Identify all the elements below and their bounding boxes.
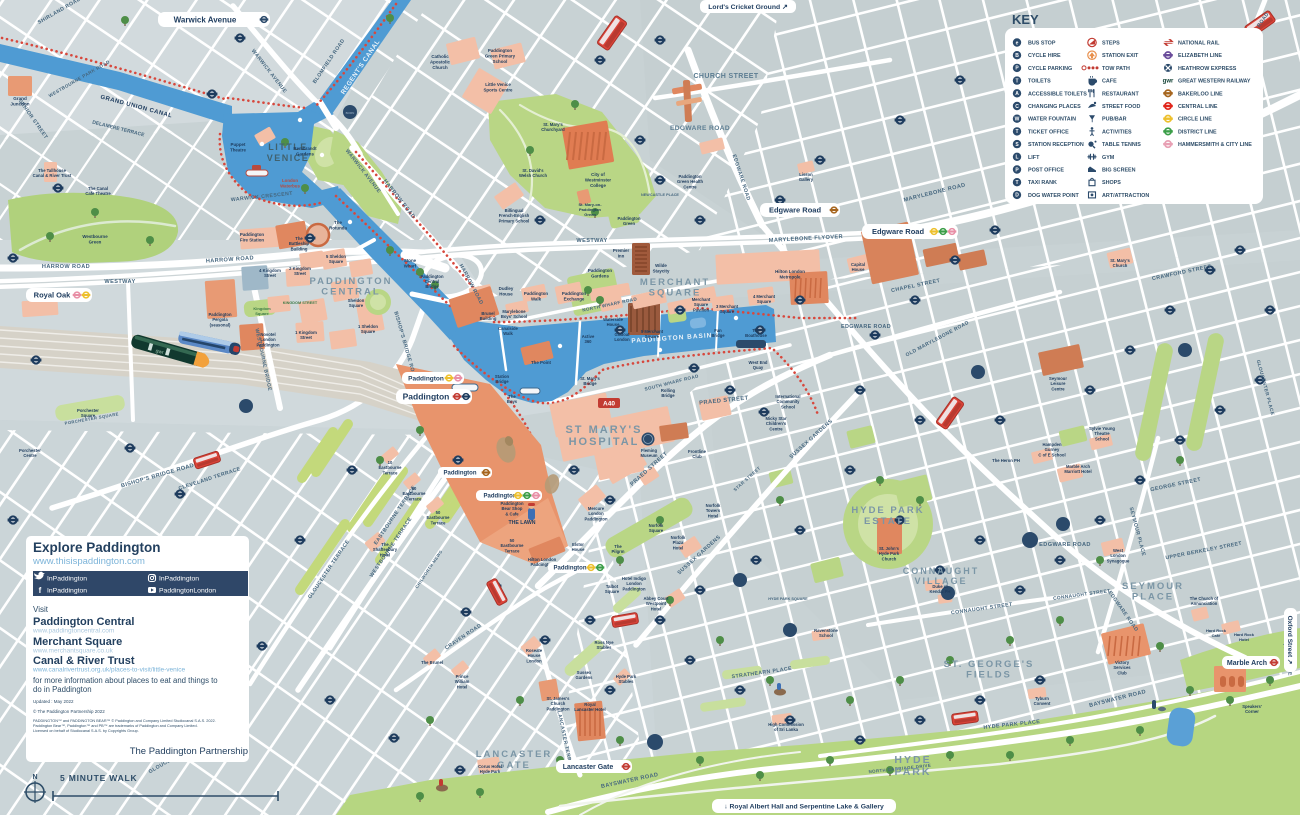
svg-text:KEY: KEY	[1012, 12, 1039, 27]
svg-text:Street: Street	[264, 273, 276, 278]
svg-text:Museum: Museum	[641, 453, 658, 458]
svg-text:TAXI RANK: TAXI RANK	[1028, 180, 1057, 186]
svg-text:Paddington: Paddington	[484, 494, 517, 500]
svg-text:London: London	[614, 337, 630, 342]
svg-text:ACCESSIBLE TOILETS: ACCESSIBLE TOILETS	[1028, 91, 1087, 97]
svg-text:CENTRAL: CENTRAL	[321, 287, 380, 298]
svg-text:STATION RECEPTION: STATION RECEPTION	[1028, 142, 1084, 148]
svg-text:(seasonal): (seasonal)	[210, 322, 231, 327]
svg-text:Square: Square	[720, 309, 735, 314]
svg-text:Licensed on behalf of Studioca: Licensed on behalf of Studiocanal S.A.S.…	[33, 729, 139, 733]
svg-text:Updated : May 2022: Updated : May 2022	[33, 699, 74, 704]
svg-text:Square: Square	[255, 311, 269, 316]
svg-text:Paddington: Paddington	[524, 291, 548, 296]
svg-text:Rotunda: Rotunda	[329, 225, 347, 230]
svg-text:ST MARY'S: ST MARY'S	[565, 424, 642, 436]
svg-text:360: 360	[585, 339, 593, 344]
svg-text:House: House	[852, 267, 865, 272]
svg-text:Synagogue: Synagogue	[1107, 558, 1130, 563]
svg-text:Café: Café	[1212, 633, 1221, 638]
svg-text:Paddington: Paddington	[588, 268, 612, 273]
svg-text:EDGWARE ROAD: EDGWARE ROAD	[841, 324, 891, 330]
svg-text:Fire Station: Fire Station	[240, 237, 264, 242]
svg-text:Marble Arch: Marble Arch	[1227, 660, 1267, 667]
svg-text:CONNAUGHT: CONNAUGHT	[903, 566, 980, 576]
svg-text:Little Venice: Little Venice	[485, 82, 511, 87]
svg-text:Square: Square	[361, 329, 376, 334]
svg-text:HAMMERSMITH & CITY LINE: HAMMERSMITH & CITY LINE	[1178, 142, 1252, 148]
svg-text:House: House	[607, 322, 620, 327]
svg-text:www.paddingtoncentral.com: www.paddingtoncentral.com	[32, 628, 114, 635]
svg-text:Apostolic: Apostolic	[430, 59, 451, 64]
svg-text:T: T	[1015, 78, 1018, 84]
svg-text:Corner: Corner	[1245, 709, 1259, 714]
svg-text:Grand: Grand	[13, 96, 27, 101]
svg-text:PADDINGTON™ and PADDINGTON BEA: PADDINGTON™ and PADDINGTON BEAR™ © Paddi…	[33, 719, 216, 723]
svg-text:Walk: Walk	[531, 296, 542, 301]
svg-text:Paddington Bear™, Paddington™: Paddington Bear™, Paddington™ and PB™ ar…	[33, 724, 198, 728]
svg-text:CAFE: CAFE	[1102, 79, 1117, 85]
svg-text:TABLE TENNIS: TABLE TENNIS	[1102, 142, 1141, 148]
svg-text:School: School	[493, 59, 508, 64]
svg-text:Lancaster Hotel: Lancaster Hotel	[574, 707, 605, 712]
svg-text:Terrace: Terrace	[383, 470, 398, 475]
svg-text:Stables: Stables	[619, 679, 635, 684]
svg-text:Puppet: Puppet	[231, 142, 246, 147]
svg-text:www.merchantsquare.co.uk: www.merchantsquare.co.uk	[32, 648, 114, 655]
svg-text:Bridge: Bridge	[425, 284, 439, 289]
svg-text:Hotel: Hotel	[1239, 637, 1249, 642]
svg-text:Terrace: Terrace	[407, 496, 422, 501]
svg-text:Welsh Church: Welsh Church	[519, 173, 548, 178]
svg-text:BUS STOP: BUS STOP	[1028, 41, 1056, 47]
svg-text:www.thisispaddington.com: www.thisispaddington.com	[32, 556, 145, 567]
svg-text:C of E School: C of E School	[1038, 452, 1065, 457]
svg-text:Paddington: Paddington	[584, 516, 607, 521]
svg-text:Lancaster Gate: Lancaster Gate	[563, 764, 614, 771]
svg-text:EDGWARE ROAD: EDGWARE ROAD	[670, 125, 730, 132]
svg-text:Paddington: Paddington	[622, 586, 645, 591]
svg-text:Visit: Visit	[33, 605, 49, 614]
svg-text:Boathouse: Boathouse	[745, 333, 767, 338]
svg-text:WATER FOUNTAIN: WATER FOUNTAIN	[1028, 117, 1076, 123]
svg-text:Merchant Square: Merchant Square	[33, 636, 122, 648]
svg-text:Street: Street	[300, 335, 312, 340]
svg-text:HYDE PARK SQUARE: HYDE PARK SQUARE	[768, 597, 808, 601]
svg-text:TOILETS: TOILETS	[1028, 79, 1051, 85]
svg-text:Club: Club	[692, 454, 702, 459]
svg-text:School: School	[781, 404, 795, 409]
svg-text:Waterbus: Waterbus	[280, 183, 300, 188]
svg-text:SHOPS: SHOPS	[1102, 180, 1121, 186]
svg-text:Terrace: Terrace	[431, 520, 446, 525]
svg-text:House: House	[572, 547, 585, 552]
svg-text:ART/ATTRACTION: ART/ATTRACTION	[1102, 193, 1149, 199]
svg-text:NEWCASTLE PLACE: NEWCASTLE PLACE	[641, 193, 679, 197]
svg-text:Gardens: Gardens	[591, 273, 609, 278]
svg-text:Walk: Walk	[503, 331, 513, 336]
svg-text:Paddington: Paddington	[546, 706, 569, 711]
svg-text:Kendal PH: Kendal PH	[930, 589, 951, 594]
svg-text:THE LAWN: THE LAWN	[508, 520, 535, 526]
svg-text:© The Paddington Partnership 2: © The Paddington Partnership 2022	[33, 708, 105, 714]
svg-text:& Cafe: & Cafe	[505, 511, 519, 516]
svg-text:do in Paddington: do in Paddington	[33, 685, 92, 694]
svg-text:Street: Street	[294, 271, 306, 276]
svg-text:Canal & River Trust: Canal & River Trust	[33, 173, 72, 178]
svg-text:Paddington: Paddington	[240, 232, 264, 237]
svg-text:ACTIVITIES: ACTIVITIES	[1102, 129, 1132, 135]
svg-text:W: W	[1015, 117, 1020, 123]
svg-text:D: D	[1015, 193, 1019, 199]
svg-text:Explore Paddington: Explore Paddington	[33, 540, 161, 555]
svg-text:T: T	[1015, 129, 1018, 135]
svg-text:Church: Church	[432, 65, 448, 70]
svg-text:Building: Building	[291, 246, 308, 251]
svg-text:Centre: Centre	[1051, 386, 1065, 391]
svg-text:5 MINUTE WALK: 5 MINUTE WALK	[60, 773, 138, 783]
svg-text:Green: Green	[623, 221, 636, 226]
svg-text:Marriott Hotel: Marriott Hotel	[1064, 469, 1091, 474]
svg-text:The Point: The Point	[531, 360, 552, 365]
svg-text:Convent: Convent	[1034, 701, 1051, 706]
svg-text:CENTRAL LINE: CENTRAL LINE	[1178, 104, 1218, 110]
svg-text:Bridge: Bridge	[583, 381, 597, 386]
svg-text:Exchange: Exchange	[564, 296, 585, 301]
svg-text:The Heron PH: The Heron PH	[992, 458, 1020, 463]
svg-text:Square: Square	[349, 303, 364, 308]
svg-text:Green Primary: Green Primary	[485, 53, 516, 58]
svg-text:f: f	[39, 586, 42, 595]
svg-text:ST. GEORGE'S: ST. GEORGE'S	[944, 659, 1035, 670]
svg-text:Paddington Central: Paddington Central	[33, 616, 134, 628]
svg-text:Wharf: Wharf	[404, 263, 417, 268]
svg-text:Square: Square	[81, 413, 96, 418]
svg-text:L: L	[1015, 155, 1018, 161]
svg-text:gwr: gwr	[1163, 79, 1174, 85]
svg-text:MERCHANT: MERCHANT	[640, 277, 710, 288]
svg-text:CHURCH STREET: CHURCH STREET	[693, 73, 758, 80]
svg-text:WESTWAY: WESTWAY	[576, 238, 607, 244]
svg-text:STATION EXIT: STATION EXIT	[1102, 53, 1139, 59]
svg-text:London: London	[282, 178, 298, 183]
svg-text:A: A	[1015, 91, 1019, 97]
svg-text:The: The	[334, 220, 342, 225]
svg-text:Church: Church	[1113, 263, 1128, 268]
svg-text:GREAT WESTERN RAILWAY: GREAT WESTERN RAILWAY	[1178, 79, 1251, 85]
svg-text:Hilton London: Hilton London	[775, 269, 805, 274]
svg-text:Hotel: Hotel	[673, 545, 683, 550]
svg-text:London: London	[526, 658, 542, 663]
svg-text:CIRCLE LINE: CIRCLE LINE	[1178, 117, 1212, 123]
svg-text:FIELDS: FIELDS	[966, 670, 1012, 681]
svg-text:Royal Oak: Royal Oak	[34, 291, 72, 300]
svg-text:Hotel: Hotel	[708, 513, 718, 518]
svg-text:Pavilion: Pavilion	[693, 307, 709, 312]
svg-text:Centre: Centre	[23, 453, 37, 458]
svg-text:BAKERLOO LINE: BAKERLOO LINE	[1178, 91, 1223, 97]
svg-text:STEPS: STEPS	[1102, 41, 1120, 47]
svg-text:TOW PATH: TOW PATH	[1102, 66, 1130, 72]
svg-text:BIG SCREEN: BIG SCREEN	[1102, 168, 1136, 174]
svg-text:Bridge: Bridge	[661, 393, 675, 398]
svg-text:Annunciation: Annunciation	[1191, 601, 1218, 606]
svg-text:Canal & River Trust: Canal & River Trust	[33, 655, 135, 667]
svg-text:Hotel: Hotel	[457, 684, 467, 689]
svg-text:EDGWARE ROAD: EDGWARE ROAD	[1039, 542, 1091, 548]
svg-text:Gallery: Gallery	[799, 177, 814, 182]
svg-text:B: B	[1015, 53, 1019, 59]
svg-text:Paddington: Paddington	[408, 375, 444, 382]
svg-text:Westbourne: Westbourne	[82, 234, 108, 239]
svg-text:T: T	[1015, 180, 1018, 186]
svg-text:Quay: Quay	[753, 365, 764, 370]
svg-text:Bridge: Bridge	[495, 379, 509, 384]
svg-text:BORN: BORN	[346, 111, 355, 115]
svg-text:Junction: Junction	[10, 102, 29, 107]
svg-text:Oxford Street ↗: Oxford Street ↗	[1286, 616, 1293, 665]
svg-text:HYDE PARK: HYDE PARK	[851, 505, 924, 516]
svg-text:Pilgrm: Pilgrm	[611, 549, 624, 554]
svg-text:NATIONAL RAIL: NATIONAL RAIL	[1178, 41, 1220, 47]
svg-text:STREET FOOD: STREET FOOD	[1102, 104, 1140, 110]
svg-text:GATE: GATE	[497, 760, 531, 771]
svg-text:Church: Church	[882, 556, 897, 561]
svg-text:A40: A40	[603, 401, 615, 408]
svg-text:Centre: Centre	[683, 184, 697, 189]
svg-text:Terrace: Terrace	[505, 548, 520, 553]
svg-text:Edgware Road: Edgware Road	[769, 206, 822, 215]
svg-text:Paddington: Paddington	[488, 48, 512, 53]
svg-text:Inn: Inn	[618, 253, 625, 258]
svg-text:CHANGING PLACES: CHANGING PLACES	[1028, 104, 1081, 110]
svg-text:ESTATE: ESTATE	[864, 516, 912, 527]
svg-text:RESTAURANT: RESTAURANT	[1102, 91, 1139, 97]
svg-text:Paddington: Paddington	[444, 471, 477, 477]
svg-text:Square: Square	[329, 259, 344, 264]
svg-text:PaddingtonLondon: PaddingtonLondon	[159, 588, 216, 595]
svg-text:DISTRICT LINE: DISTRICT LINE	[1178, 129, 1217, 135]
svg-text:Green: Green	[584, 212, 596, 217]
svg-text:Gardens: Gardens	[576, 675, 594, 680]
svg-text:Stone: Stone	[404, 258, 417, 263]
svg-text:PUB/BAR: PUB/BAR	[1102, 117, 1127, 123]
svg-text:HYDE: HYDE	[894, 754, 931, 766]
svg-text:Wilde: Wilde	[655, 263, 667, 268]
svg-text:The Brunel: The Brunel	[421, 660, 443, 665]
svg-text:City of: City of	[591, 172, 605, 177]
svg-text:Boys' School: Boys' School	[501, 314, 527, 319]
svg-text:Boys: Boys	[507, 399, 518, 404]
svg-text:Rembrandt: Rembrandt	[293, 146, 317, 151]
svg-text:Premier: Premier	[613, 248, 630, 253]
svg-text:PARK: PARK	[895, 766, 932, 778]
svg-text:Primary School: Primary School	[499, 218, 530, 223]
svg-text:Cafe Theatre: Cafe Theatre	[85, 191, 111, 196]
svg-text:KINGDOM STREET: KINGDOM STREET	[283, 301, 318, 305]
svg-text:www.canalrivertrust.org.uk/pla: www.canalrivertrust.org.uk/places-to-vis…	[32, 667, 185, 674]
svg-text:School: School	[819, 633, 833, 638]
svg-text:for more information about pla: for more information about places to eat…	[33, 676, 218, 685]
svg-text:POST OFFICE: POST OFFICE	[1028, 168, 1064, 174]
svg-text:DOG WATER POINT: DOG WATER POINT	[1028, 193, 1080, 199]
svg-text:Westminster: Westminster	[585, 177, 612, 182]
svg-text:Warwick Avenue: Warwick Avenue	[174, 15, 237, 24]
svg-text:Sports Centre: Sports Centre	[483, 87, 513, 92]
svg-text:Gardens: Gardens	[296, 151, 314, 156]
svg-text:PADDINGTON: PADDINGTON	[310, 276, 393, 287]
svg-text:Lord's Cricket Ground ↗: Lord's Cricket Ground ↗	[708, 4, 788, 11]
svg-text:Edgware Road: Edgware Road	[872, 227, 925, 236]
svg-text:HOSPITAL: HOSPITAL	[569, 436, 640, 448]
svg-text:CYCLE HIRE: CYCLE HIRE	[1028, 53, 1061, 59]
svg-text:Churchyard: Churchyard	[541, 127, 565, 132]
svg-text:Paddington: Paddington	[554, 566, 587, 572]
svg-text:Square: Square	[645, 334, 660, 339]
svg-text:College: College	[590, 183, 606, 188]
svg-text:PLACE: PLACE	[1132, 592, 1174, 603]
svg-text:e: e	[1016, 40, 1019, 46]
svg-text:Club: Club	[1117, 670, 1127, 675]
svg-text:Square: Square	[757, 299, 772, 304]
svg-text:LIFT: LIFT	[1028, 155, 1040, 161]
svg-text:LANCASTER: LANCASTER	[476, 749, 553, 760]
svg-text:InPaddington: InPaddington	[47, 588, 87, 595]
svg-text:Paddington: Paddington	[562, 291, 586, 296]
svg-text:InPaddington: InPaddington	[159, 576, 199, 583]
svg-text:GYM: GYM	[1102, 155, 1115, 161]
svg-text:Staycity: Staycity	[653, 268, 670, 273]
svg-text:CYCLE PARKING: CYCLE PARKING	[1028, 66, 1072, 72]
svg-text:WESTWAY: WESTWAY	[104, 279, 135, 285]
svg-text:TICKET OFFICE: TICKET OFFICE	[1028, 129, 1069, 135]
svg-text:N: N	[32, 774, 37, 781]
svg-text:ELIZABETH LINE: ELIZABETH LINE	[1178, 53, 1222, 59]
svg-text:Square: Square	[605, 589, 620, 594]
svg-text:SEYMOUR: SEYMOUR	[1122, 581, 1184, 592]
svg-text:House: House	[499, 291, 513, 296]
svg-text:Paddington: Paddington	[256, 342, 279, 347]
svg-text:Bridge: Bridge	[711, 333, 725, 338]
svg-text:C: C	[1015, 104, 1019, 110]
svg-text:The Paddington Partnership: The Paddington Partnership	[130, 746, 248, 757]
svg-text:Green: Green	[89, 239, 102, 244]
svg-text:Catholic: Catholic	[431, 54, 449, 59]
svg-text:HARROW ROAD: HARROW ROAD	[42, 264, 90, 270]
svg-text:InPaddington: InPaddington	[47, 576, 87, 583]
svg-text:Centre: Centre	[769, 426, 783, 431]
svg-text:Hotel: Hotel	[651, 606, 661, 611]
svg-text:Dudley: Dudley	[499, 286, 514, 291]
svg-text:Hotel: Hotel	[380, 552, 390, 557]
svg-text:Stables: Stables	[597, 645, 613, 650]
svg-text:School: School	[1095, 436, 1109, 441]
svg-text:Building: Building	[480, 316, 497, 321]
svg-text:Metropole: Metropole	[780, 274, 802, 279]
svg-text:Hyde Park: Hyde Park	[480, 769, 501, 774]
svg-text:Paddington: Paddington	[403, 392, 450, 402]
svg-text:Square: Square	[649, 528, 664, 533]
svg-text:↓ Royal Albert Hall and Serpe: ↓ Royal Albert Hall and Serpentine Lake …	[724, 803, 884, 810]
svg-text:of Sri Lanka: of Sri Lanka	[774, 727, 799, 732]
svg-text:Theatre: Theatre	[230, 147, 246, 152]
svg-text:HEATHROW EXPRESS: HEATHROW EXPRESS	[1178, 66, 1237, 72]
